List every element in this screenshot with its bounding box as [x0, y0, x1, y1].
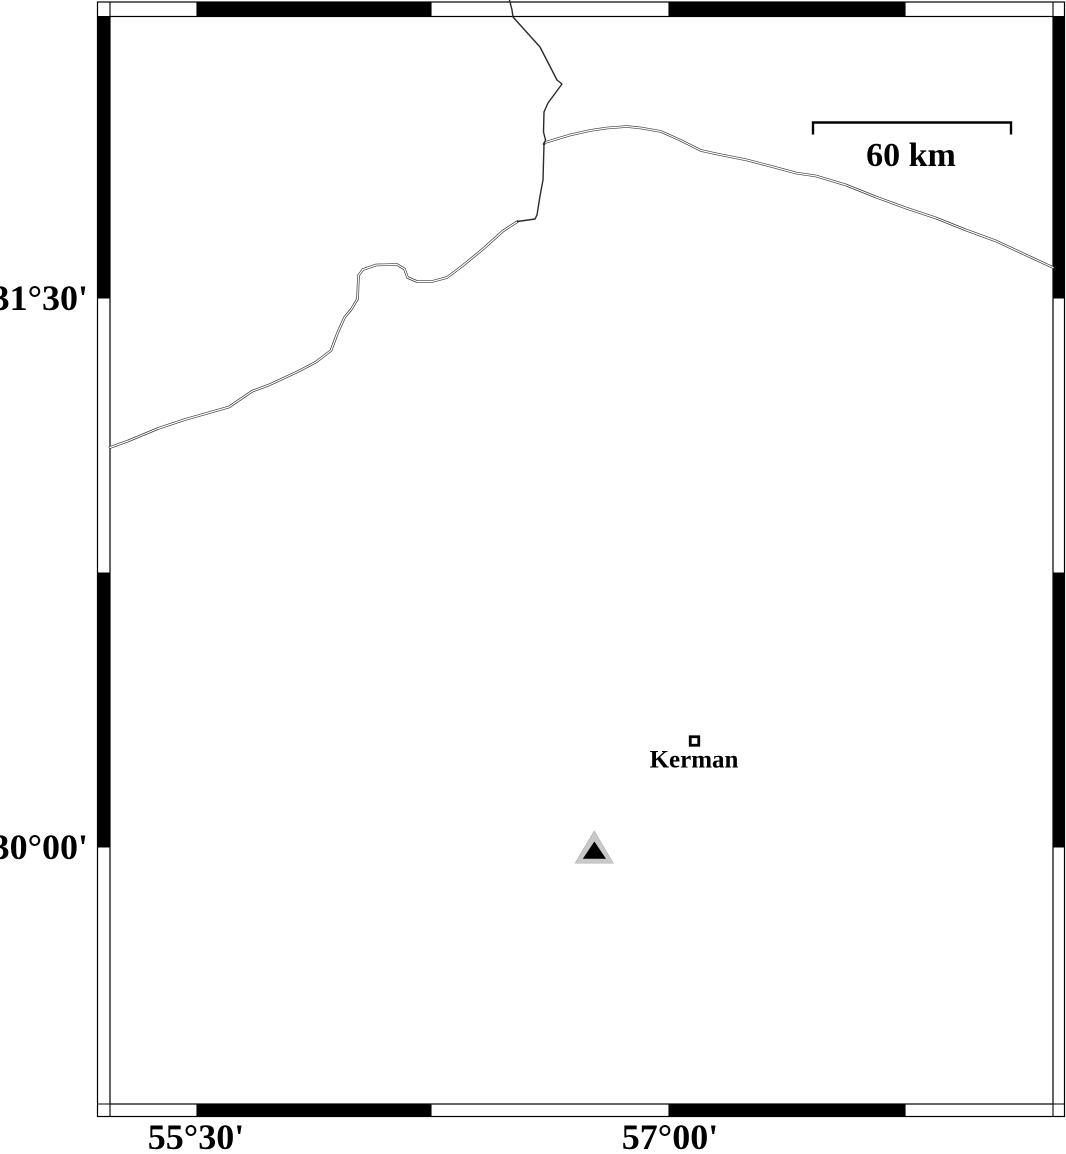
city-square-icon — [690, 737, 699, 746]
frame-segment-top-black-1 — [197, 2, 431, 17]
frame-segment-left-black-2 — [98, 573, 111, 847]
frame-segment-top-black-2 — [669, 2, 905, 17]
frame-segment-left-black-1 — [98, 17, 111, 299]
frame-segment-right-black-1 — [1053, 17, 1065, 299]
map-canvas: 31°30' 30°00' 55°30' 57°00' 60 km Kerman — [0, 0, 1066, 1154]
lon-label-right: 57°00' — [622, 1119, 718, 1154]
frame-segment-bottom-black-2 — [669, 1104, 905, 1117]
lon-label-left: 55°30' — [148, 1119, 244, 1154]
scale-bar-label: 60 km — [866, 139, 956, 173]
lat-label-top: 31°30' — [0, 280, 88, 316]
lat-label-bottom: 30°00' — [0, 829, 88, 865]
city-label: Kerman — [650, 748, 739, 773]
frame-segment-right-black-2 — [1053, 573, 1065, 847]
frame-segment-bottom-black-1 — [197, 1104, 431, 1117]
